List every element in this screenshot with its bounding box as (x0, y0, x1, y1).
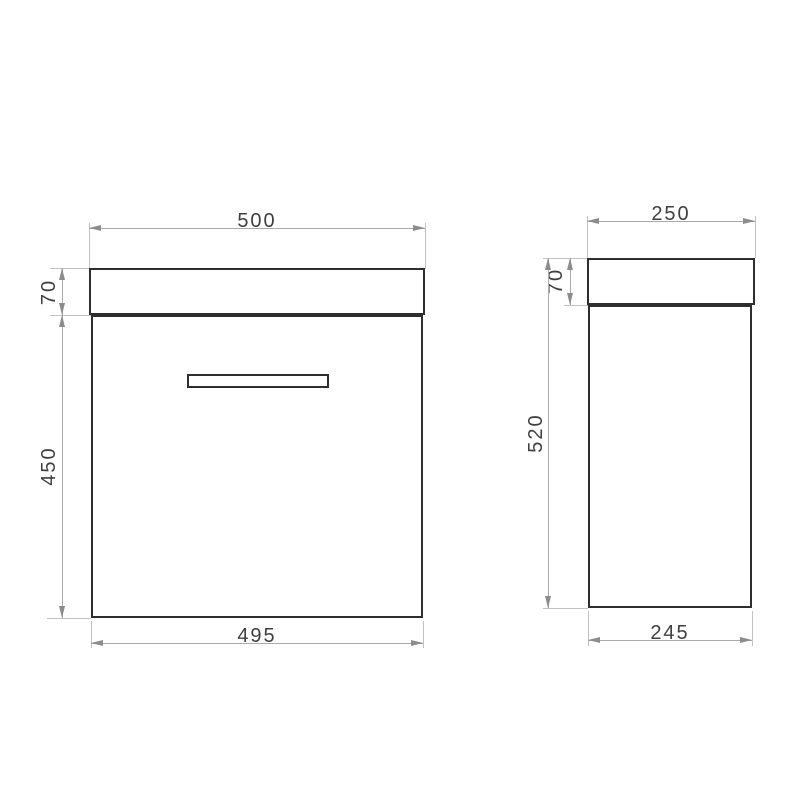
arrow-up-icon (545, 258, 551, 270)
arrow-right-icon (743, 218, 755, 224)
side-countertop-height-label: 70 (546, 268, 566, 294)
side-countertop (587, 258, 755, 305)
arrow-right-icon (740, 637, 752, 643)
technical-drawing-canvas: 500 70 450 495 250 (0, 0, 800, 800)
arrow-down-icon (567, 293, 573, 305)
side-total-height-label: 520 (526, 413, 546, 452)
arrow-up-icon (567, 258, 573, 270)
side-total-height-dimension-line (548, 258, 549, 608)
arrow-left-icon (587, 218, 599, 224)
side-view: 250 70 520 245 (0, 0, 800, 800)
side-bottom-depth-label: 245 (650, 623, 689, 643)
side-cabinet-body (588, 305, 752, 608)
side-top-depth-label: 250 (651, 204, 690, 224)
arrow-down-icon (545, 596, 551, 608)
arrow-left-icon (588, 637, 600, 643)
